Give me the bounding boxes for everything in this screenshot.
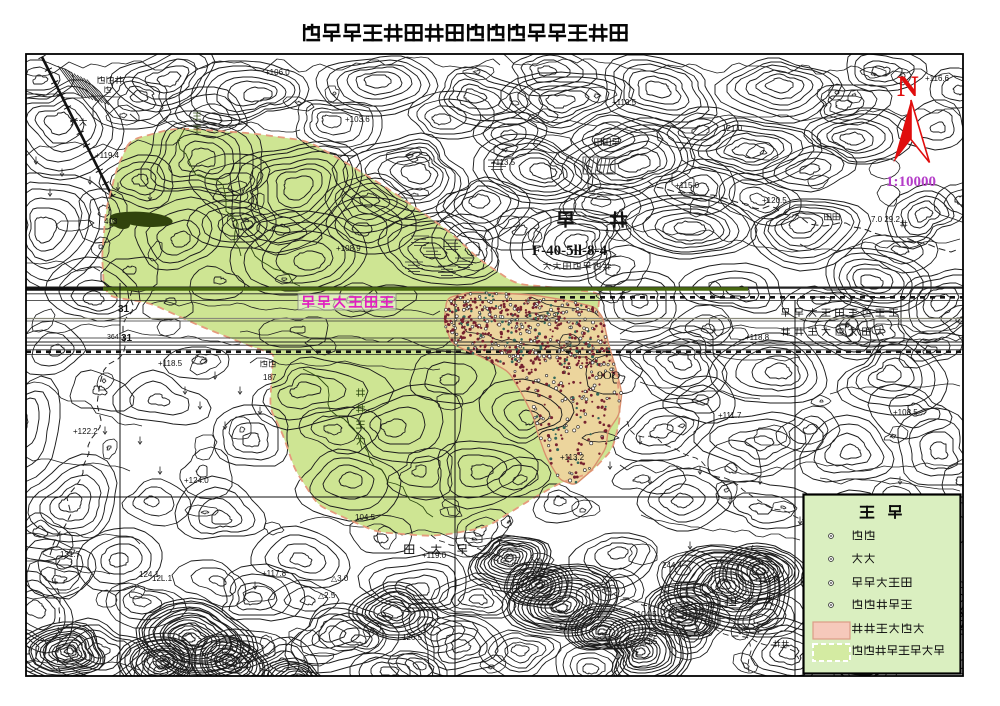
svg-text:104.5: 104.5 bbox=[355, 513, 376, 522]
svg-text:△2.5: △2.5 bbox=[318, 591, 336, 600]
svg-text:+110.5: +110.5 bbox=[612, 98, 637, 107]
svg-text:+118.8: +118.8 bbox=[745, 333, 770, 342]
svg-text:+120.5: +120.5 bbox=[762, 196, 787, 205]
svg-text:+115.0: +115.0 bbox=[675, 181, 700, 190]
svg-text:126.5: 126.5 bbox=[402, 633, 423, 642]
svg-text:+122.2: +122.2 bbox=[73, 427, 98, 436]
svg-text:+103.6: +103.6 bbox=[345, 115, 370, 124]
svg-text:+123.5: +123.5 bbox=[554, 623, 579, 632]
svg-text:N: N bbox=[897, 70, 919, 103]
svg-text:9OO: 9OO bbox=[597, 368, 621, 382]
svg-text:+111.7: +111.7 bbox=[718, 411, 742, 420]
svg-text:+118.5: +118.5 bbox=[158, 359, 183, 368]
svg-text:7.0 29.2: 7.0 29.2 bbox=[871, 215, 900, 224]
svg-text:+112.8: +112.8 bbox=[754, 575, 779, 584]
svg-text:131.7: 131.7 bbox=[60, 550, 81, 559]
svg-text:364: 364 bbox=[107, 334, 119, 341]
svg-text:12L.1: 12L.1 bbox=[152, 574, 173, 583]
svg-text:+124.0: +124.0 bbox=[184, 476, 209, 485]
svg-text:121.0: 121.0 bbox=[722, 124, 743, 133]
svg-text:+108.9: +108.9 bbox=[336, 244, 361, 253]
svg-text:1:10000: 1:10000 bbox=[886, 174, 936, 190]
svg-text:+119.0: +119.0 bbox=[422, 551, 447, 560]
svg-text:△3.0: △3.0 bbox=[331, 574, 349, 583]
svg-text:+117.8: +117.8 bbox=[262, 569, 287, 578]
svg-text:△3.5: △3.5 bbox=[640, 637, 658, 646]
svg-text:244.4: 244.4 bbox=[662, 561, 683, 570]
svg-text:+116.6: +116.6 bbox=[925, 74, 950, 83]
svg-text:31: 31 bbox=[121, 333, 133, 344]
svg-text:+106.0: +106.0 bbox=[265, 68, 290, 77]
svg-text:+114.1: +114.1 bbox=[704, 601, 729, 610]
svg-text:+104.5: +104.5 bbox=[632, 610, 657, 619]
svg-text:+108.5: +108.5 bbox=[893, 408, 918, 417]
svg-text:+119.4: +119.4 bbox=[95, 151, 120, 160]
svg-text:F-40-5ll-8-4: F-40-5ll-8-4 bbox=[532, 243, 607, 259]
svg-text:+113.5: +113.5 bbox=[491, 158, 516, 167]
svg-text:408: 408 bbox=[104, 217, 118, 226]
svg-text:31: 31 bbox=[118, 304, 130, 315]
svg-text:+113.2: +113.2 bbox=[560, 453, 585, 462]
svg-text:187: 187 bbox=[263, 373, 277, 382]
